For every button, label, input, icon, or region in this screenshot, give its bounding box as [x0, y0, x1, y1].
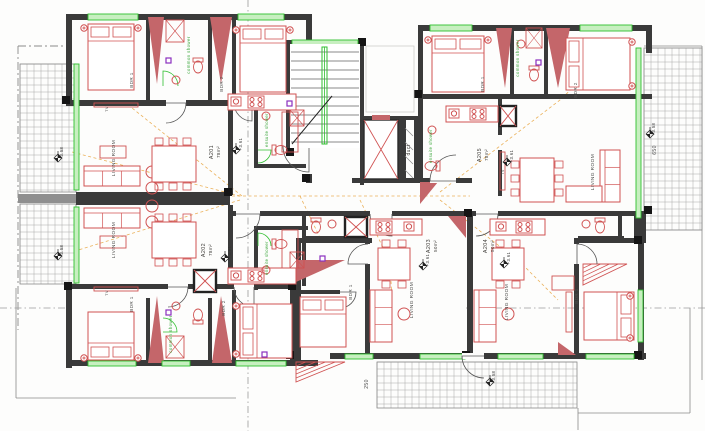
room-label-common-shower: common shower	[515, 39, 520, 77]
bed	[584, 292, 634, 340]
level-text: +3.58	[491, 370, 496, 383]
room-label-living: LIVING ROOM	[409, 282, 415, 318]
window	[636, 48, 641, 218]
room-label-common-shower: common shower	[168, 315, 173, 353]
room-label-bdr: BDR 1	[129, 296, 134, 312]
floor-plan-svg: ductBDR 1BDR 2BDR 1BDR 2BDR 1BDR 2BDR 1B…	[0, 0, 705, 431]
bed	[240, 26, 286, 92]
window	[638, 290, 643, 342]
apartment-id: A201	[209, 145, 215, 159]
level-text: +3.61	[509, 149, 514, 162]
tv-label: TV	[105, 106, 109, 112]
window	[345, 354, 373, 359]
room-label-bdr: BDR 1	[574, 288, 579, 304]
socket-symbol	[536, 60, 541, 65]
bed	[88, 312, 134, 360]
staircase	[290, 44, 360, 148]
apartment-area: 78m²	[208, 244, 213, 256]
room-label-common-shower: common shower	[186, 36, 191, 74]
shaft-a205	[500, 106, 516, 126]
bed	[240, 304, 292, 358]
apartment-id: A203	[426, 239, 432, 253]
socket-symbol	[320, 256, 325, 261]
room-label-ensuite-shower: ensuite shower	[264, 241, 269, 275]
apartment-area: 50m²	[490, 240, 495, 252]
room-label-bdr: BDR 1	[129, 72, 134, 88]
socket-symbol	[166, 310, 171, 315]
room-label-bdr: BDR 2	[221, 300, 226, 316]
dining-table	[152, 138, 196, 190]
window	[74, 64, 79, 190]
room-label-living: LIVING ROOM	[504, 284, 510, 320]
elevator-door	[372, 115, 390, 120]
dining-table	[152, 214, 196, 266]
apartment-area: 78m²	[216, 146, 221, 158]
dining-table	[511, 158, 563, 202]
room-label-living: LIVING ROOM	[111, 222, 117, 258]
room-label-bdr: BDR 2	[219, 76, 224, 92]
room-label-bdr: BDR 1	[348, 284, 353, 300]
bed	[566, 38, 630, 90]
sofa-seat	[566, 186, 602, 202]
bed	[300, 297, 346, 347]
level-text: +3.58	[59, 146, 64, 159]
window	[238, 14, 284, 20]
level-text: +3.61	[425, 253, 430, 266]
level-text: +3.58	[651, 122, 656, 135]
level-text: +3.61	[227, 245, 232, 258]
window	[498, 354, 543, 359]
apartment-id: A204	[483, 239, 489, 253]
bed	[432, 36, 484, 92]
level-text: +3.61	[238, 137, 243, 150]
window	[420, 354, 465, 359]
window	[88, 14, 138, 20]
sofa	[600, 150, 620, 202]
socket-symbol	[262, 352, 267, 357]
shaft-a203	[345, 217, 367, 237]
room-label-living: LIVING ROOM	[111, 140, 117, 176]
room-label-ensuite-shower: ensuite shower	[264, 113, 269, 147]
shaft-a202	[194, 270, 216, 292]
window	[580, 25, 632, 31]
room-label-bdr: BDR 2	[573, 82, 578, 98]
duct-label: duct	[406, 144, 412, 155]
apartment-area: 78m²	[484, 149, 489, 161]
apartment-area: 50m²	[433, 240, 438, 252]
elevator	[364, 115, 398, 179]
room-label-ensuite-shower: ensuite shower	[428, 129, 433, 163]
dimension-650: 650	[652, 145, 658, 155]
sofa	[474, 290, 496, 342]
room-label-living: LIVING ROOM	[590, 154, 596, 190]
level-text: +3.61	[506, 251, 511, 264]
tv-label: TV	[105, 290, 109, 296]
bed	[88, 24, 134, 90]
window	[162, 361, 190, 366]
room-label-bdr: BDR 1	[480, 76, 485, 92]
apartment-id: A205	[477, 148, 483, 162]
sofa	[370, 290, 392, 342]
window	[88, 361, 136, 366]
window	[236, 361, 286, 366]
dimension-250: 250	[364, 379, 370, 389]
floor-plan-canvas: ductBDR 1BDR 2BDR 1BDR 2BDR 1BDR 2BDR 1B…	[0, 0, 705, 431]
apartment-id: A202	[201, 243, 207, 257]
window	[586, 354, 634, 359]
window	[430, 25, 472, 31]
socket-symbol	[287, 101, 292, 106]
tv-label: TV	[501, 169, 505, 175]
window	[74, 207, 79, 283]
level-text: +3.58	[59, 244, 64, 257]
socket-symbol	[166, 58, 171, 63]
